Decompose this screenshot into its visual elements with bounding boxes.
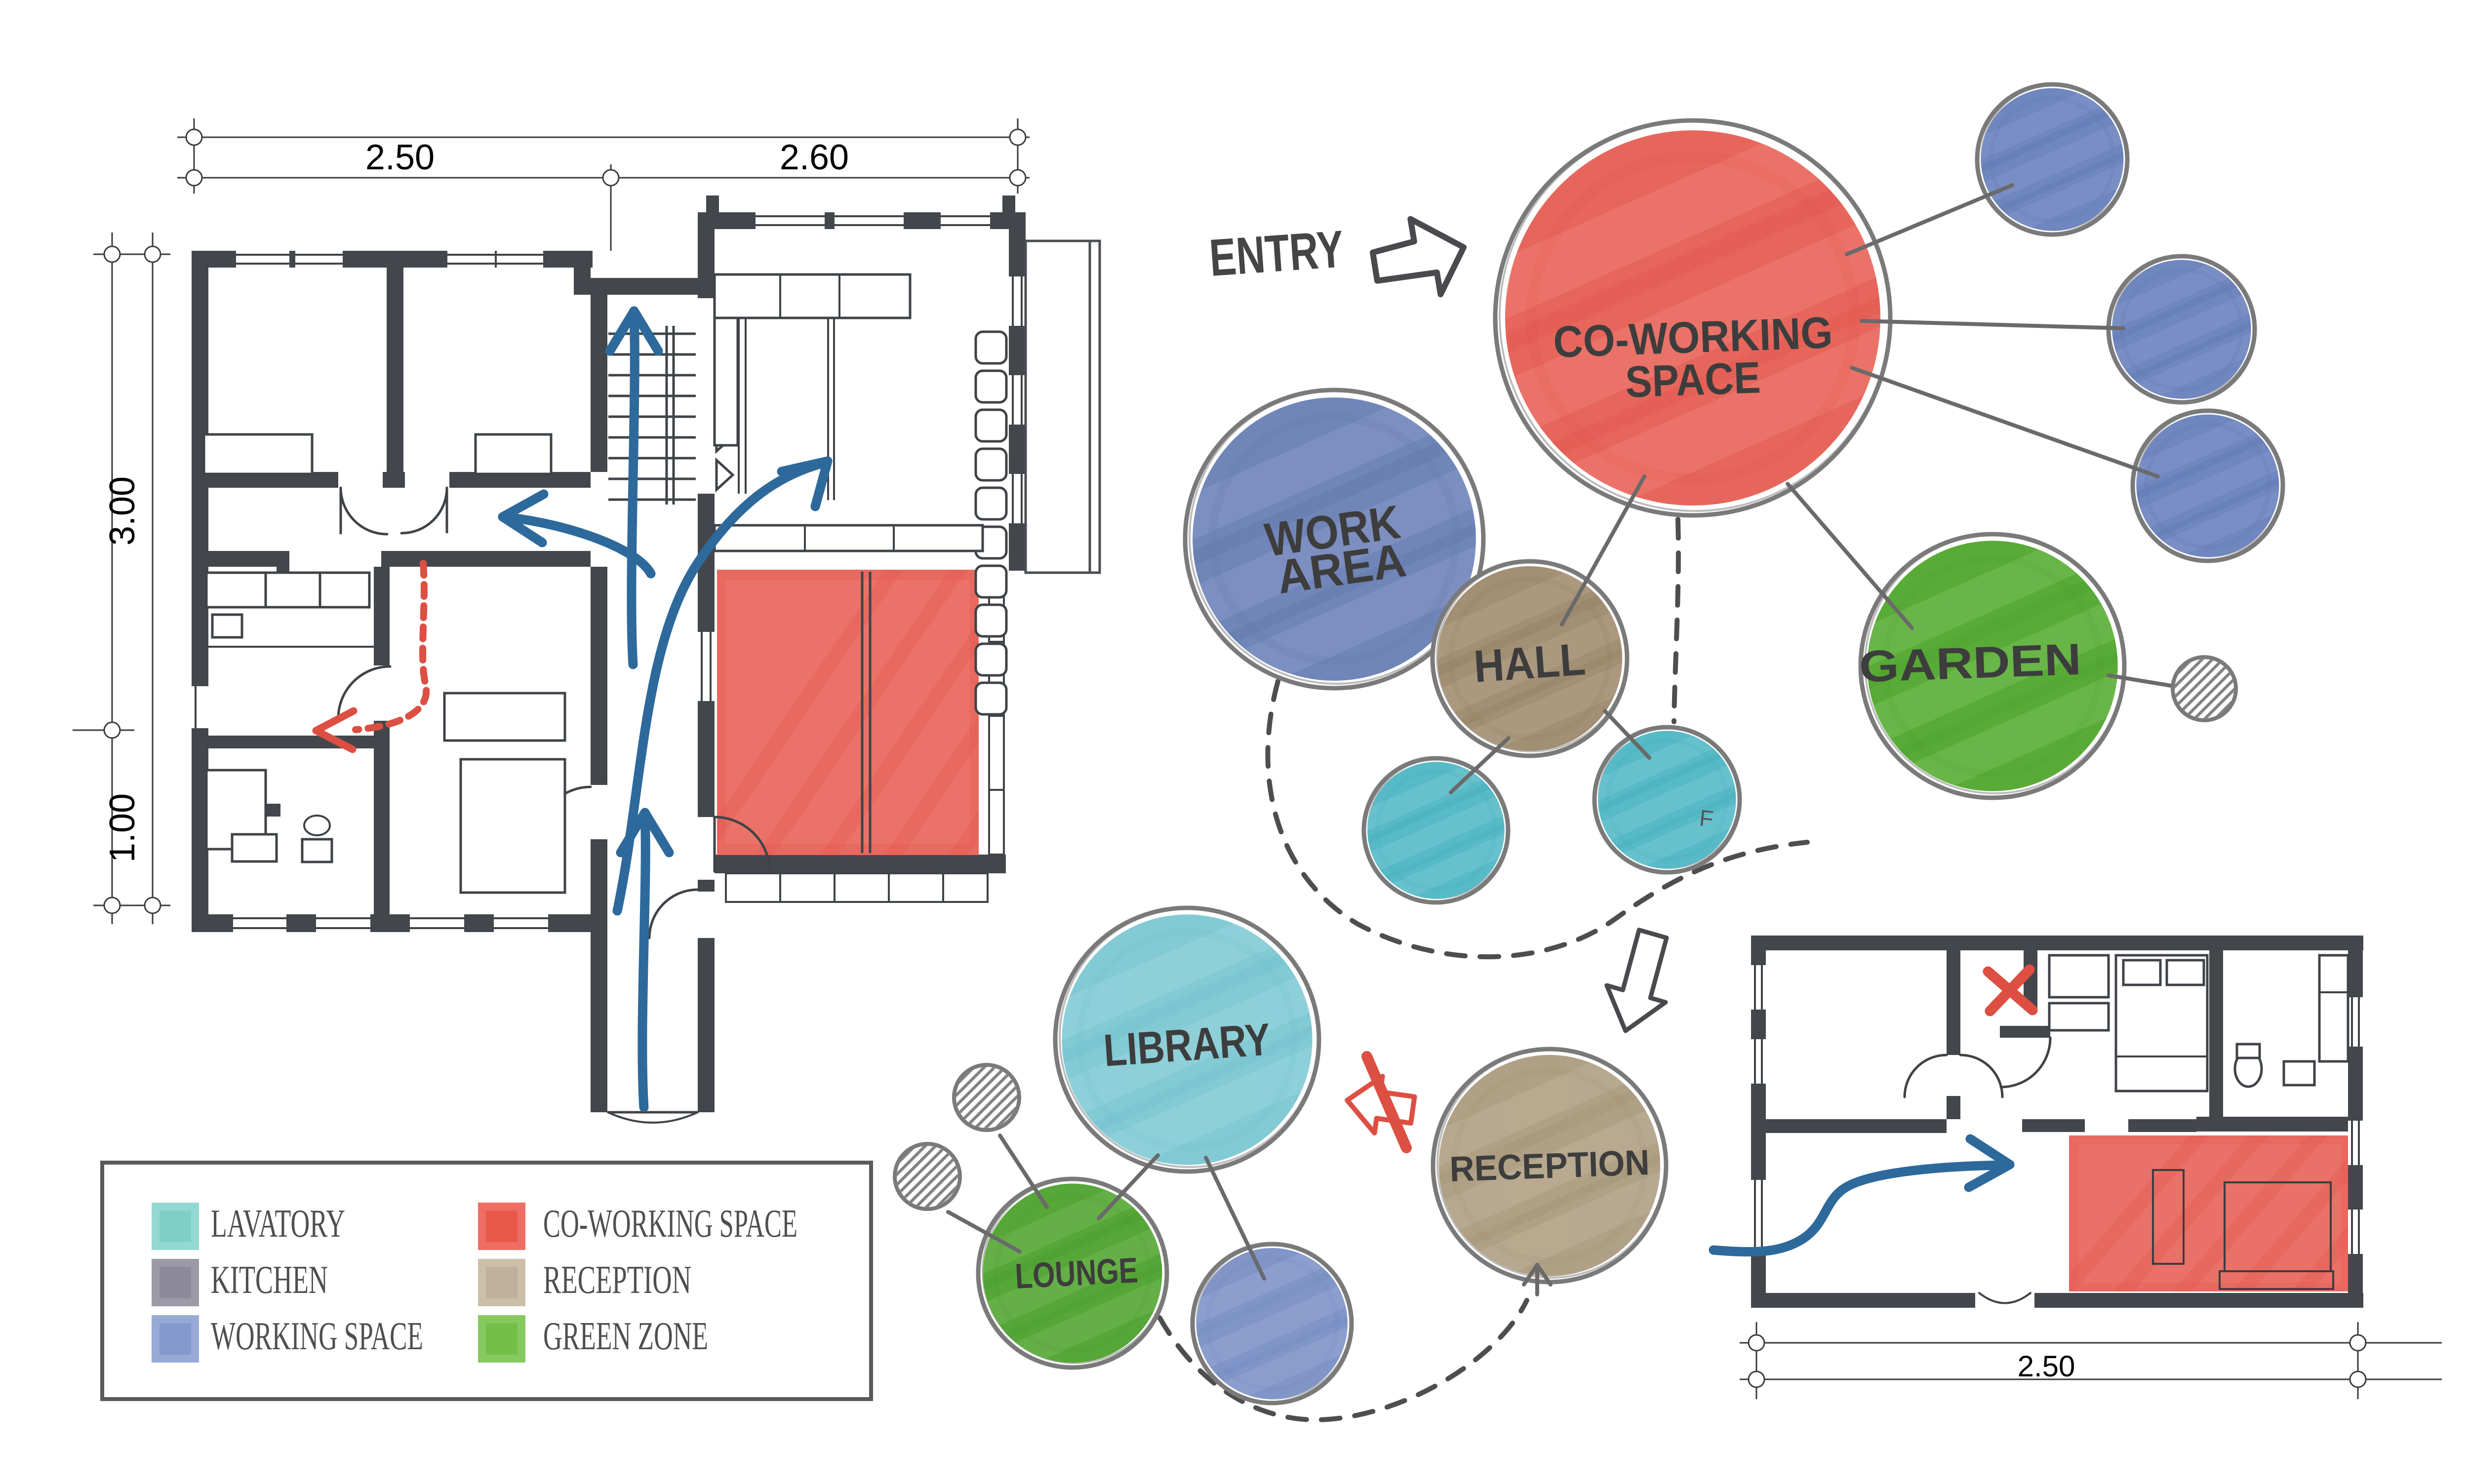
svg-text:2.50: 2.50: [365, 138, 435, 177]
svg-text:2.50: 2.50: [2018, 1350, 2075, 1383]
svg-text:LOUNGE: LOUNGE: [1014, 1250, 1139, 1296]
svg-text:HALL: HALL: [1472, 634, 1587, 692]
svg-text:RECEPTION: RECEPTION: [1449, 1143, 1650, 1189]
svg-text:2.60: 2.60: [780, 138, 849, 177]
svg-text:LAVATORY: LAVATORY: [211, 1202, 345, 1246]
svg-text:SPACE: SPACE: [1625, 353, 1761, 407]
svg-text:F: F: [1698, 805, 1714, 832]
svg-text:GREEN ZONE: GREEN ZONE: [543, 1315, 708, 1358]
svg-text:WORKING SPACE: WORKING SPACE: [211, 1315, 423, 1358]
svg-text:ENTRY: ENTRY: [1207, 220, 1346, 287]
svg-text:3.00: 3.00: [103, 476, 142, 546]
svg-text:RECEPTION: RECEPTION: [543, 1258, 691, 1302]
svg-text:1.00: 1.00: [103, 793, 142, 862]
svg-text:CO-WORKING SPACE: CO-WORKING SPACE: [543, 1202, 797, 1246]
svg-text:KITCHEN: KITCHEN: [211, 1258, 328, 1302]
svg-text:GARDEN: GARDEN: [1858, 635, 2082, 692]
